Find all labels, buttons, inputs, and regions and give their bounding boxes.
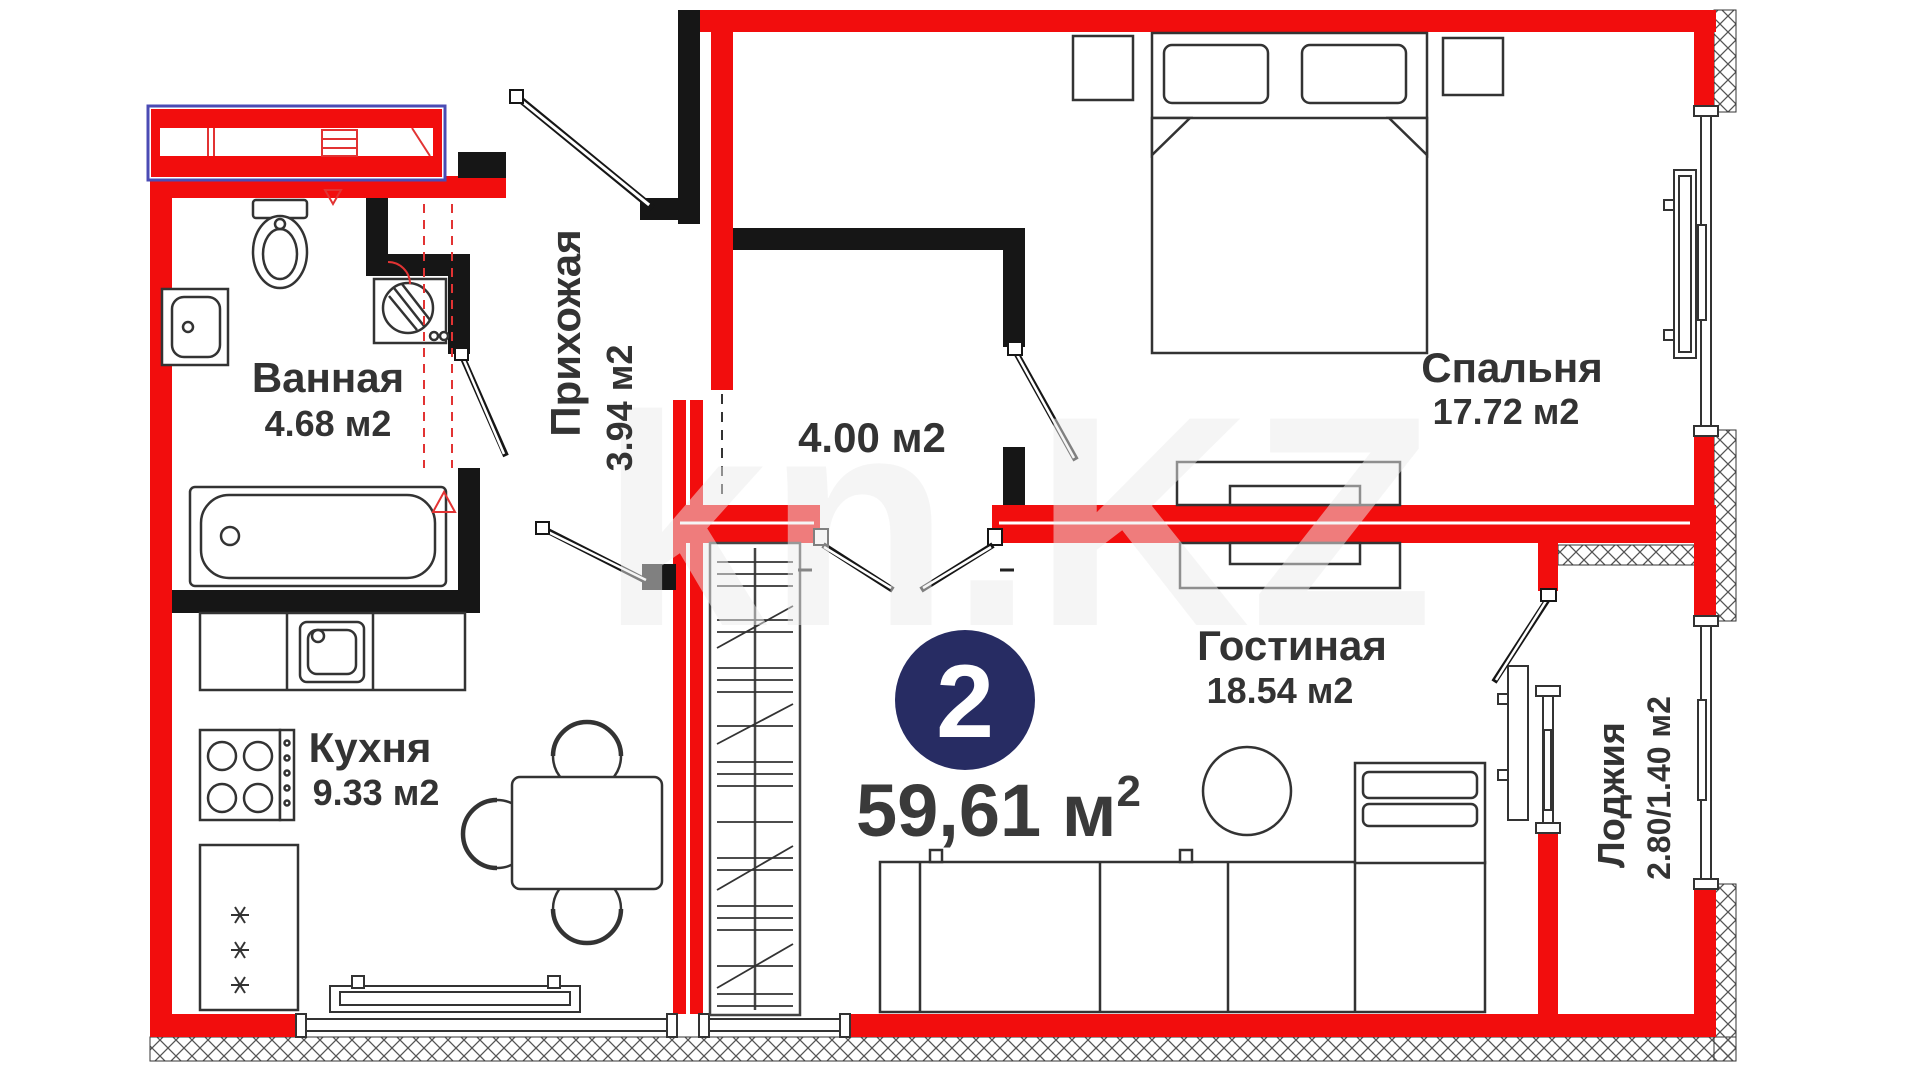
- plumbing-risers: [325, 190, 455, 512]
- toilet-icon: [253, 200, 307, 288]
- kitchen-label: Кухня: [309, 724, 432, 771]
- bathroom-area: 4.68 м2: [265, 403, 392, 444]
- apartment-badge: 2: [895, 630, 1035, 770]
- kitchen-area: 9.33 м2: [313, 772, 440, 813]
- hall-area: 4.00 м2: [798, 414, 946, 461]
- living-label: Гостиная: [1197, 622, 1387, 669]
- stove-icon: [200, 730, 294, 820]
- total-area: 59,61 м2: [856, 767, 1141, 852]
- bathtub-icon: [190, 487, 446, 586]
- floor-plan-page: kn.KZ kn.KZ Ванная 4.68 м2 Прихожая 3.94…: [0, 0, 1920, 1080]
- entry-door: [510, 90, 650, 206]
- loggia-area: 2.80/1.40 м2: [1641, 696, 1677, 880]
- kitchen-counter: [200, 613, 465, 690]
- hallway-label: Прихожая: [542, 229, 589, 436]
- bedroom-radiator: [1664, 170, 1696, 358]
- bedroom-area: 17.72 м2: [1433, 391, 1580, 432]
- kitchen-radiator: [330, 976, 580, 1012]
- vent-shaft-block: [148, 106, 445, 180]
- side-table: [1203, 747, 1291, 835]
- floor-plan: kn.KZ kn.KZ Ванная 4.68 м2 Прихожая 3.94…: [0, 0, 1920, 1080]
- bathroom-door: [455, 348, 506, 456]
- washbasin-icon: [162, 289, 228, 365]
- dining-table: [463, 722, 662, 943]
- bedroom-stool: [1073, 36, 1133, 100]
- bathroom-label: Ванная: [252, 354, 404, 401]
- badge-number: 2: [936, 644, 994, 760]
- washing-machine-icon: [374, 279, 448, 343]
- loggia-label: Лоджия: [1591, 722, 1633, 868]
- kitchen-cabinet: [200, 845, 298, 1010]
- bedroom-label: Спальня: [1421, 344, 1602, 391]
- living-area: 18.54 м2: [1207, 670, 1354, 711]
- hallway-area: 3.94 м2: [599, 345, 640, 472]
- living-radiator: [1498, 666, 1528, 820]
- bed-icon: [1152, 33, 1427, 353]
- nightstand: [1443, 38, 1503, 95]
